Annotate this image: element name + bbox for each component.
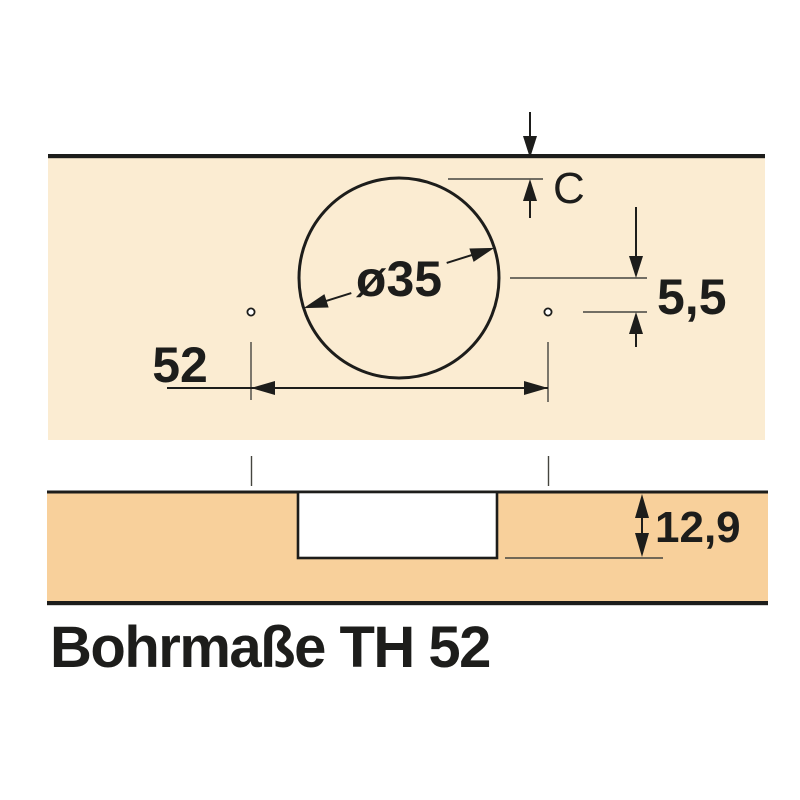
diagram-canvas: ø35 C 5,5 52 (0, 0, 800, 800)
panel-front-edge-line (48, 154, 765, 158)
drilling-dimensions-diagram: ø35 C 5,5 52 (0, 0, 800, 800)
cup-diameter-label: ø35 (356, 251, 442, 307)
cup-to-screw-label: 5,5 (657, 269, 727, 325)
cup-drilling-notch (298, 492, 497, 558)
diagram-title: Bohrmaße TH 52 (50, 615, 490, 680)
section-view: 12,9 (47, 491, 768, 606)
drill-depth-label: 12,9 (655, 503, 741, 552)
edge-distance-label: C (553, 164, 585, 213)
top-view: ø35 C 5,5 52 (48, 112, 765, 440)
screw-hole-right (544, 308, 551, 315)
section-bottom-edge-line (47, 601, 768, 605)
screw-spacing-label: 52 (152, 337, 208, 393)
screw-hole-left (247, 308, 254, 315)
